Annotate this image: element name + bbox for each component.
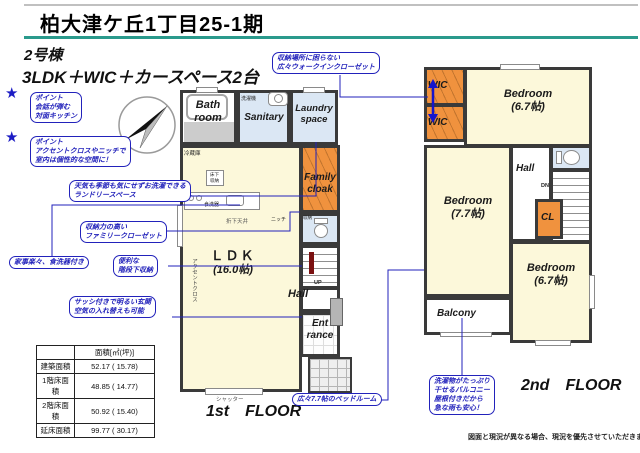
refrigerator-label: 冷蔵庫 <box>184 151 201 157</box>
window <box>589 275 595 309</box>
callout-text: 対面キッチン <box>35 112 77 121</box>
room-label-cl: CL <box>541 212 554 224</box>
callout-text: 天気も季節も気にせずお洗濯できる <box>74 182 186 191</box>
row-value: 50.92 ( 15.40) <box>75 399 155 424</box>
window <box>440 332 492 337</box>
sink-bowl-icon <box>274 94 283 103</box>
dn-label: DN <box>541 183 549 189</box>
floor2-label: 2nd FLOOR <box>521 371 621 395</box>
row-value: 48.85 ( 14.77) <box>75 374 155 399</box>
room-label-line: (16.0帖) <box>200 264 266 277</box>
row-value: 99.77 ( 30.17) <box>75 424 155 438</box>
table-corner-cell <box>37 346 75 360</box>
row-value: 52.17 ( 15.78) <box>75 360 155 374</box>
window <box>303 87 325 93</box>
callout-text: 階段下収納 <box>118 266 153 275</box>
room-label-line: Bath <box>182 99 234 112</box>
room-label-line: (6.7帖) <box>490 101 566 114</box>
callout-entrance: サッシ付きで明るい玄関 空気の入れ替えも可能 <box>69 296 156 318</box>
room-label-laundry: Laundry space <box>291 103 337 126</box>
room-label-line: Family <box>301 172 339 184</box>
dishwasher-label: 食洗器 <box>204 203 219 209</box>
callout-text: 洗濯物がたっぷり <box>434 377 490 386</box>
building-number: 2号棟 <box>24 44 62 65</box>
floor-storage-label: 収納 <box>210 179 219 184</box>
callout-text: ポイント <box>35 138 126 147</box>
callout-point-accent: ポイント アクセントクロスやニッチで 室内は個性的な空間に！ <box>30 136 131 167</box>
room-label-balcony: Balcony <box>437 308 476 320</box>
window <box>500 64 540 70</box>
room-label-bedroom-67-top: Bedroom (6.7帖) <box>490 88 566 114</box>
stove-burner-icon <box>196 195 202 201</box>
porch-tiles <box>308 357 352 393</box>
row-label: 1階床面積 <box>37 374 75 399</box>
callout-text: 急な雨も安心！ <box>434 404 490 413</box>
room-label-bedroom-67-bottom: Bedroom (6.7帖) <box>514 262 588 288</box>
callout-family-closet: 収納力の高い ファミリークローゼット <box>80 221 167 243</box>
table-header-cell: 面積[㎡(坪)] <box>75 346 155 360</box>
star-icon: ★ <box>5 86 18 101</box>
room-label-bedroom-77: Bedroom (7.7帖) <box>432 195 504 221</box>
room-label-line: Bedroom <box>432 195 504 208</box>
row-label: 2階床面積 <box>37 399 75 424</box>
window <box>196 87 218 93</box>
callout-balcony: 洗濯物がたっぷり 干せるバルコニー 屋根付きだから 急な雨も安心！ <box>429 375 495 415</box>
flyer-page: 柏大津ケ丘1丁目25-1期 2号棟 3LDK＋WIC＋カースペース2台 ★ ポイ… <box>0 0 640 453</box>
page-title: 柏大津ケ丘1丁目25-1期 <box>40 8 264 37</box>
room-label-sanitary: Sanitary <box>239 112 289 124</box>
window-shutter <box>205 388 263 395</box>
top-rule <box>24 4 638 6</box>
room-label-line: Laundry <box>291 103 337 114</box>
room-label-bath: Bath room <box>182 99 234 125</box>
toilet-icon <box>563 150 580 165</box>
plan-type: 3LDK＋WIC＋カースペース2台 <box>22 63 259 88</box>
callout-dishwasher: 家事楽々、食洗器付き <box>9 256 89 269</box>
row-label: 延床面積 <box>37 424 75 438</box>
callout-wic: 収納場所に困らない 広々ウォークインクローゼット <box>272 52 380 74</box>
table-header-row: 面積[㎡(坪)] <box>37 346 155 360</box>
callout-text: 家事楽々、食洗器付き <box>14 258 84 267</box>
star-icon: ★ <box>5 130 18 145</box>
callout-under-stairs: 便利な 階段下収納 <box>113 255 158 277</box>
room-label-line: space <box>291 114 337 125</box>
callout-text: 広々7.7帖のベッドルーム <box>297 395 377 404</box>
room-label-line: Bedroom <box>490 88 566 101</box>
callout-text: ランドリースペース <box>74 191 186 200</box>
callout-text: 広々ウォークインクローゼット <box>277 63 375 72</box>
callout-text: 収納場所に困らない <box>277 54 375 63</box>
callout-text: 収納力の高い <box>85 223 162 232</box>
table-row: 延床面積 99.77 ( 30.17) <box>37 424 155 438</box>
table-row: 建築面積 52.17 ( 15.78) <box>37 360 155 374</box>
callout-laundry: 天気も季節も気にせずお洗濯できる ランドリースペース <box>69 180 191 202</box>
up-label: UP <box>314 280 322 286</box>
area-table: 面積[㎡(坪)] 建築面積 52.17 ( 15.78) 1階床面積 48.85… <box>36 345 155 438</box>
room-label-line: (7.7帖) <box>432 208 504 221</box>
callout-point-kitchen: ポイント 会話が弾む 対面キッチン <box>30 92 82 123</box>
room-label-line: cloak <box>301 184 339 196</box>
room-label-line: room <box>182 112 234 125</box>
room-label-line: (6.7帖) <box>514 275 588 288</box>
room-bedroom-67-bottom <box>510 241 592 343</box>
floor1-label: 1st FLOOR <box>206 397 301 421</box>
storage-label: 収納 <box>303 216 312 221</box>
toilet-icon <box>556 151 562 164</box>
shoe-cabinet <box>330 298 343 326</box>
room-label-wic2: WIC <box>428 117 447 129</box>
accent-cloth-label: アクセントクロス <box>191 258 197 302</box>
callout-text: ポイント <box>35 94 77 103</box>
window <box>535 340 571 346</box>
niche-label: ニッチ <box>271 218 286 224</box>
washing-machine-label: 洗濯機 <box>241 97 256 103</box>
dropped-ceiling-label: 折下天井 <box>226 219 248 225</box>
room-label-line: ＬＤＫ <box>200 248 266 264</box>
callout-text: 室内は個性的な空間に！ <box>35 156 126 165</box>
floor-storage-box: 床下 収納 <box>206 170 224 186</box>
room-label-ldk: ＬＤＫ (16.0帖) <box>200 248 266 277</box>
toilet-icon <box>314 224 328 238</box>
room-label-hall-2f: Hall <box>516 163 534 175</box>
disclaimer: 図面と現況が異なる場合、現況を優先させていただきます。 <box>468 432 640 442</box>
callout-text: 便利な <box>118 257 153 266</box>
room-label-hall-1f: Hall <box>288 288 308 301</box>
room-label-family-cloak: Family cloak <box>301 172 339 196</box>
kitchen-sink-icon <box>226 195 244 206</box>
callout-text: ファミリークローゼット <box>85 232 162 241</box>
kitchen-counter-icon <box>184 192 260 210</box>
callout-text: 屋根付きだから <box>434 395 490 404</box>
table-row: 1階床面積 48.85 ( 14.77) <box>37 374 155 399</box>
stairs-handrail <box>309 252 314 274</box>
callout-text: 会話が弾む <box>35 103 77 112</box>
row-label: 建築面積 <box>37 360 75 374</box>
room-label-line: rance <box>301 330 339 342</box>
callout-bedroom77: 広々7.7帖のベッドルーム <box>292 393 382 406</box>
callout-text: 干せるバルコニー <box>434 386 490 395</box>
callout-text: サッシ付きで明るい玄関 <box>74 298 151 307</box>
callout-text: アクセントクロスやニッチで <box>35 147 126 156</box>
room-label-line: Bedroom <box>514 262 588 275</box>
window <box>177 205 183 247</box>
callout-text: 空気の入れ替えも可能 <box>74 307 151 316</box>
room-label-wic1: WIC <box>428 80 447 92</box>
table-row: 2階床面積 50.92 ( 15.40) <box>37 399 155 424</box>
